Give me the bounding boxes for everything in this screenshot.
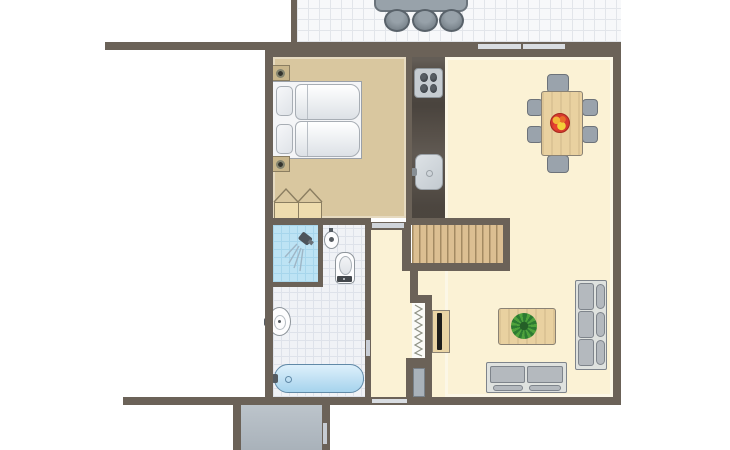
floor-plan	[0, 0, 730, 450]
bathtub	[274, 364, 364, 393]
sofa-seat	[578, 339, 594, 366]
fence-wall-bottom-left	[123, 397, 265, 405]
sofa-3-seat	[575, 280, 607, 370]
front-door-jamb-left	[406, 365, 413, 397]
bathroom-door-opening	[366, 340, 370, 356]
flush-button-icon	[343, 278, 345, 280]
storage-room	[241, 405, 322, 450]
wardrobe-door-swing-lines	[272, 187, 324, 203]
pillow	[276, 124, 293, 154]
bedroom-kitchen-wall	[406, 57, 412, 218]
double-bed	[272, 81, 362, 159]
window-top-1	[478, 44, 521, 49]
sofa-seat	[527, 366, 563, 383]
nightstand	[271, 65, 290, 81]
pillow	[276, 86, 293, 116]
bathroom-hallway-wall	[365, 218, 371, 405]
terrace-left-wall	[291, 0, 297, 42]
toilet	[335, 252, 355, 284]
sofa-seat	[578, 283, 594, 310]
bedroom-door-opening	[372, 223, 404, 228]
storage-door	[323, 423, 327, 444]
staircase	[412, 225, 503, 263]
lamp-icon	[276, 69, 285, 78]
radiator	[412, 303, 425, 358]
sofa-seat	[578, 311, 594, 338]
burner-icon	[430, 73, 438, 82]
burner-icon	[430, 84, 438, 93]
duvet-fold-line	[307, 85, 308, 119]
sofa-back-cushion	[596, 284, 605, 309]
mattress	[295, 84, 360, 120]
tv-icon	[437, 313, 442, 350]
plant-icon	[511, 313, 537, 339]
exterior-wall-right	[613, 42, 621, 405]
dining-chair	[582, 126, 598, 143]
drain-icon	[285, 376, 292, 383]
hand-basin	[324, 231, 339, 249]
duvet-fold-line	[307, 122, 308, 156]
lamp-icon	[276, 160, 285, 169]
burner-icon	[420, 84, 428, 93]
shower-wall-right	[318, 225, 323, 287]
front-door	[413, 368, 425, 397]
fruit-bowl-icon	[550, 113, 570, 133]
cooktop	[414, 68, 443, 98]
sofa-back-cushion	[596, 312, 605, 337]
sofa-2-seat	[486, 362, 567, 393]
sofa-armrest	[529, 385, 561, 391]
drain-icon	[278, 320, 281, 323]
fence-wall-top-left	[105, 42, 265, 50]
dining-chair	[547, 155, 569, 173]
storage-wall-left	[233, 405, 241, 450]
tv-cabinet	[432, 310, 450, 353]
front-door-jamb-right	[425, 365, 432, 397]
sofa-back-cushion	[596, 340, 605, 365]
outdoor-chair	[384, 9, 410, 32]
dining-chair	[582, 99, 598, 116]
stairs-end-wall	[503, 218, 510, 271]
exterior-wall-top	[265, 42, 621, 57]
bedroom-bathroom-wall	[265, 218, 371, 225]
exterior-wall-bottom	[265, 397, 621, 405]
shower-wall-bottom	[273, 282, 323, 287]
outdoor-chair	[412, 9, 438, 32]
radiator-zigzag-icon	[412, 303, 425, 358]
window-bottom	[372, 399, 407, 403]
outdoor-chair	[439, 9, 464, 32]
hallway-floor	[371, 230, 402, 397]
burner-icon	[420, 73, 428, 82]
nightstand	[271, 156, 290, 172]
toilet-bowl	[339, 256, 352, 275]
sofa-seat	[490, 366, 525, 383]
kitchen-sink	[415, 154, 443, 190]
shower-head-icon	[282, 230, 316, 276]
tap-icon	[329, 228, 333, 232]
toilet-cistern	[337, 276, 352, 282]
drain-icon	[329, 237, 334, 242]
sofa-armrest	[493, 385, 523, 391]
stairs-top-wall	[406, 218, 510, 225]
drain-icon	[426, 170, 433, 177]
mattress	[295, 121, 360, 157]
cooktop-burners	[420, 73, 437, 93]
window-top-2	[523, 44, 565, 49]
